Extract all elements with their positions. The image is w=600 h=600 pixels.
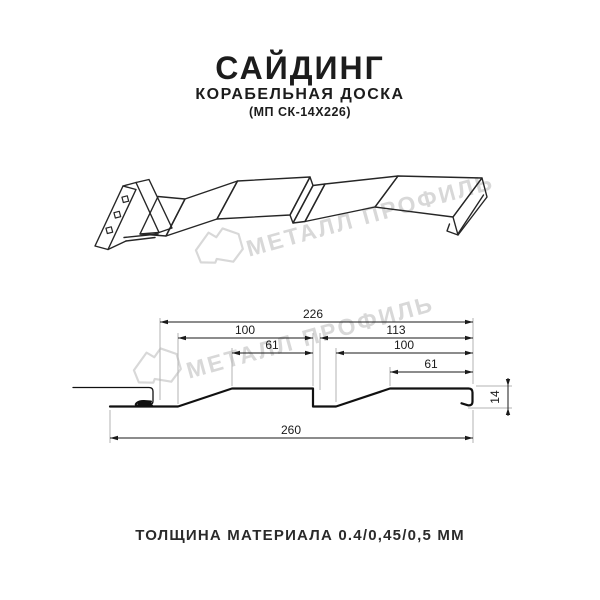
dimension-overall-bottom: 260 — [281, 423, 301, 437]
dimension-lines — [110, 322, 508, 438]
panel-3d-drawing — [95, 176, 487, 250]
extension-lines — [110, 318, 512, 443]
dimension-inner-right: 100 — [394, 338, 414, 352]
cross-section-drawing: 226 100 113 61 100 61 260 14 — [73, 307, 512, 443]
dimension-board-left: 100 — [235, 323, 255, 337]
technical-drawing: 226 100 113 61 100 61 260 14 — [0, 0, 600, 600]
product-diagram-page: САЙДИНГ КОРАБЕЛЬНАЯ ДОСКА (МП СК-14Х226)… — [0, 0, 600, 600]
dimension-profile-height: 14 — [488, 390, 502, 404]
dimension-board-right: 113 — [386, 323, 405, 337]
dimension-flat-right: 61 — [424, 357, 438, 371]
profile-outline — [73, 388, 473, 407]
dimension-overall-top: 226 — [303, 307, 323, 321]
dimension-flat-left: 61 — [265, 338, 279, 352]
